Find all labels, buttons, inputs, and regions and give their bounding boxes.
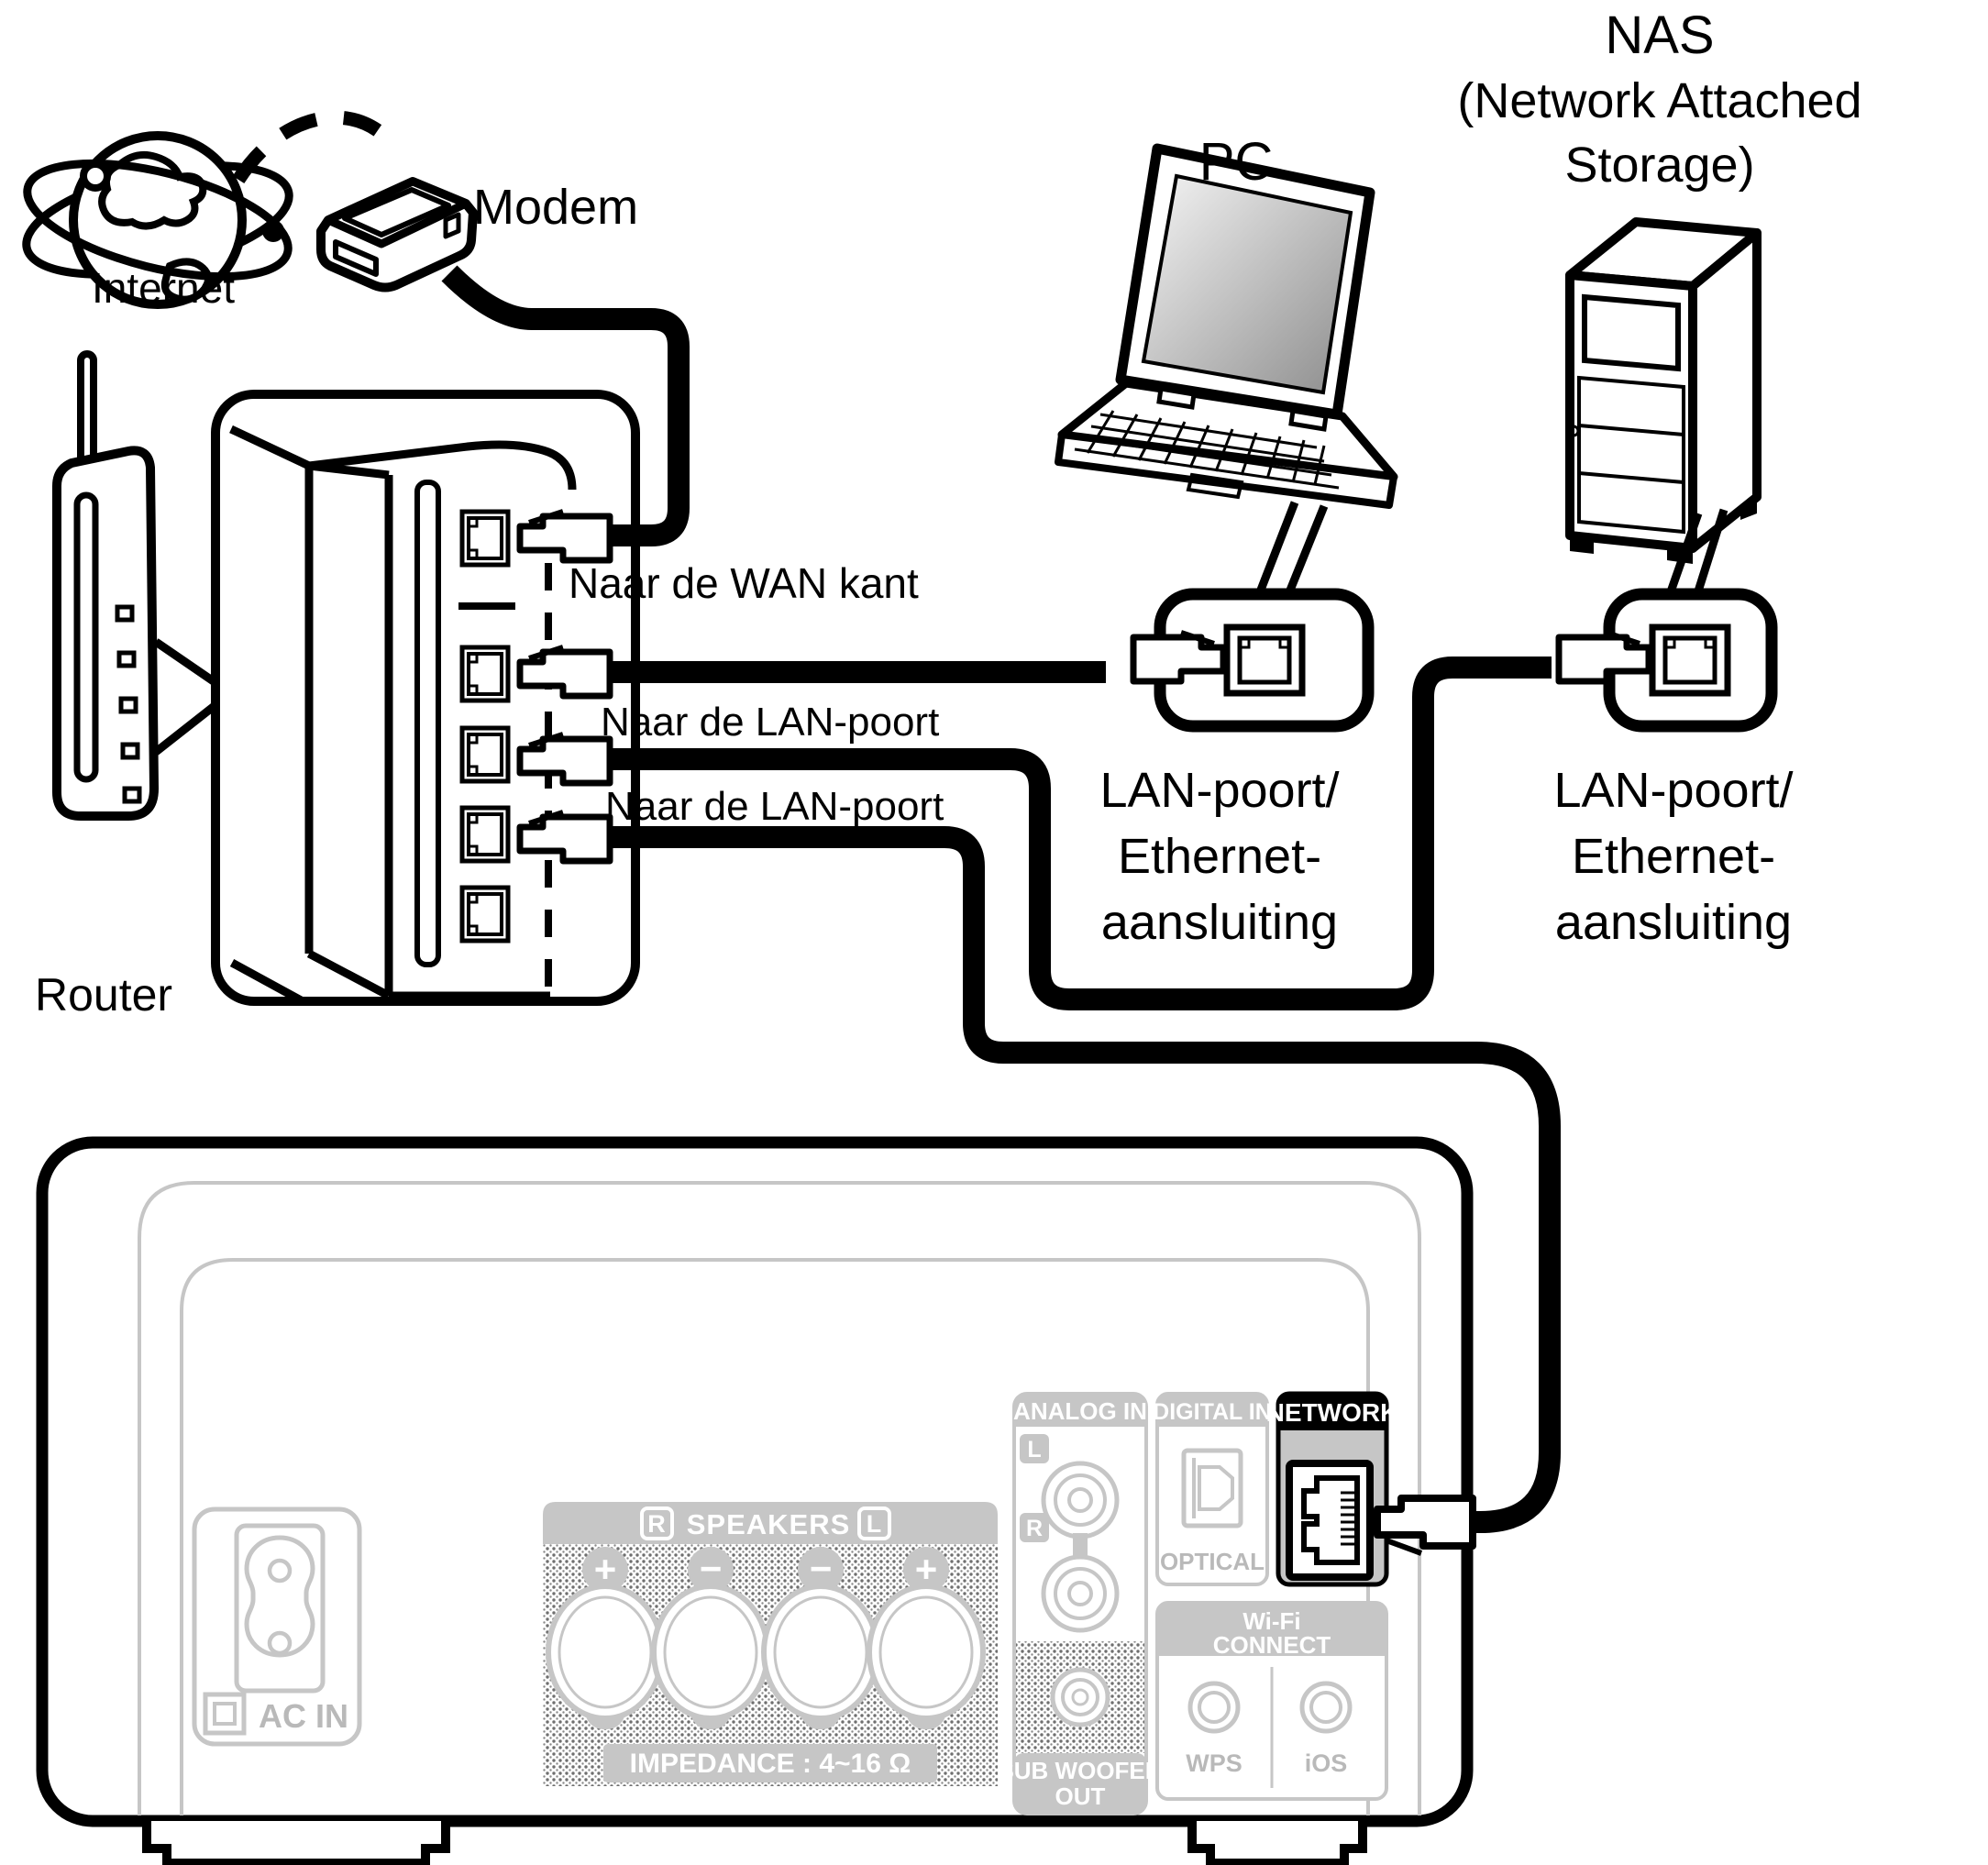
network-ethernet-jack	[1289, 1463, 1370, 1577]
nas-port-label-2: Ethernet-	[1572, 829, 1775, 884]
nas-port-label-1: LAN-poort/	[1553, 763, 1793, 818]
lan-port-1-icon	[462, 647, 508, 701]
pc-port-label-1: LAN-poort/	[1099, 763, 1339, 818]
wan-plug-icon	[520, 512, 610, 560]
ac-in-section: AC IN	[194, 1509, 359, 1744]
nas-side-face	[1693, 233, 1757, 548]
rca-jack-left	[1044, 1463, 1117, 1537]
lan-port-label-1: Naar de LAN-poort	[601, 700, 939, 745]
analog-in-label: ANALOG IN	[1013, 1397, 1147, 1425]
rca-jack-right	[1044, 1557, 1117, 1630]
digital-in-label: DIGITAL IN	[1153, 1399, 1272, 1425]
router-callout-wedge	[156, 642, 220, 752]
pc-lan-callout	[1133, 594, 1368, 726]
pc-label: PC	[1199, 132, 1274, 192]
network-section: NETWORK	[1266, 1394, 1399, 1584]
satellite-left	[83, 164, 107, 188]
nas-tower-icon	[1569, 222, 1757, 564]
wan-side-label: Naar de WAN kant	[569, 559, 919, 607]
lan-port-2-icon	[462, 728, 508, 781]
optical-label: OPTICAL	[1160, 1548, 1265, 1575]
lan-plug-3-icon	[520, 812, 610, 861]
speakers-header-label: SPEAKERS	[687, 1508, 851, 1540]
device-foot-left	[147, 1821, 446, 1863]
pc-ethernet-jack-icon	[1227, 627, 1302, 693]
modem-label: Modem	[473, 180, 638, 235]
network-label: NETWORK	[1266, 1398, 1399, 1427]
nas-label-line1: NAS	[1605, 6, 1714, 65]
router-label: Router	[35, 969, 172, 1021]
lan-plug-1-icon	[520, 647, 610, 696]
svg-text:R: R	[1026, 1516, 1043, 1541]
nas-front-face	[1570, 275, 1693, 548]
optical-connector-icon	[1184, 1451, 1241, 1526]
nas-lan-callout	[1559, 594, 1772, 726]
svg-text:L: L	[1027, 1437, 1041, 1462]
amplifier-rear-panel: AC IN R SPEAKERS L +	[42, 1142, 1467, 1863]
wps-button	[1190, 1683, 1238, 1731]
wps-label: WPS	[1186, 1749, 1242, 1777]
nas-ethernet-jack-icon	[1652, 627, 1728, 693]
svg-text:R: R	[647, 1510, 666, 1538]
ios-label: iOS	[1305, 1749, 1348, 1777]
pc-port-label-3: aansluiting	[1101, 895, 1338, 950]
nas-label-line3: Storage)	[1564, 138, 1754, 193]
impedance-label: IMPEDANCE : 4~16 Ω	[630, 1749, 911, 1779]
device-foot-right	[1192, 1821, 1363, 1863]
pc-callout-pointer	[1258, 502, 1324, 597]
nas-plug-icon	[1559, 633, 1649, 681]
pc-port-label-2: Ethernet-	[1118, 829, 1321, 884]
internet-label: Internet	[92, 264, 235, 312]
lan-port-3-icon	[462, 808, 508, 861]
speakers-section: R SPEAKERS L + −	[543, 1502, 998, 1786]
router-icon	[57, 354, 154, 816]
laptop-screen	[1143, 176, 1351, 392]
nas-label-line2: (Network Attached	[1457, 73, 1861, 128]
lan-plug-2-icon	[520, 734, 610, 783]
lan-port-label-2: Naar de LAN-poort	[605, 784, 944, 829]
modem-icon	[321, 182, 473, 288]
pc-laptop-icon	[1058, 149, 1394, 505]
router-antenna	[81, 354, 94, 464]
svg-text:CONNECT: CONNECT	[1213, 1631, 1331, 1659]
wan-port-icon	[462, 512, 508, 565]
pc-plug-icon	[1133, 633, 1223, 681]
network-connection-diagram: AC IN R SPEAKERS L +	[0, 0, 1988, 1865]
analog-in-section: ANALOG IN L R SUB	[998, 1394, 1162, 1814]
subwoofer-jack	[1053, 1670, 1108, 1725]
svg-text:L: L	[867, 1510, 882, 1538]
lan-port-4-icon	[462, 888, 508, 941]
nas-port-label-3: aansluiting	[1555, 895, 1792, 950]
ios-button	[1302, 1683, 1350, 1731]
wifi-connect-section: Wi-Fi CONNECT WPS iOS	[1157, 1603, 1386, 1799]
network-plug-icon	[1377, 1498, 1473, 1553]
svg-text:OUT: OUT	[1055, 1782, 1106, 1810]
ac-in-label: AC IN	[259, 1697, 348, 1735]
digital-in-section: DIGITAL IN OPTICAL	[1153, 1394, 1272, 1584]
svg-text:SUB WOOFER: SUB WOOFER	[998, 1757, 1162, 1784]
satellite-right	[262, 220, 284, 242]
